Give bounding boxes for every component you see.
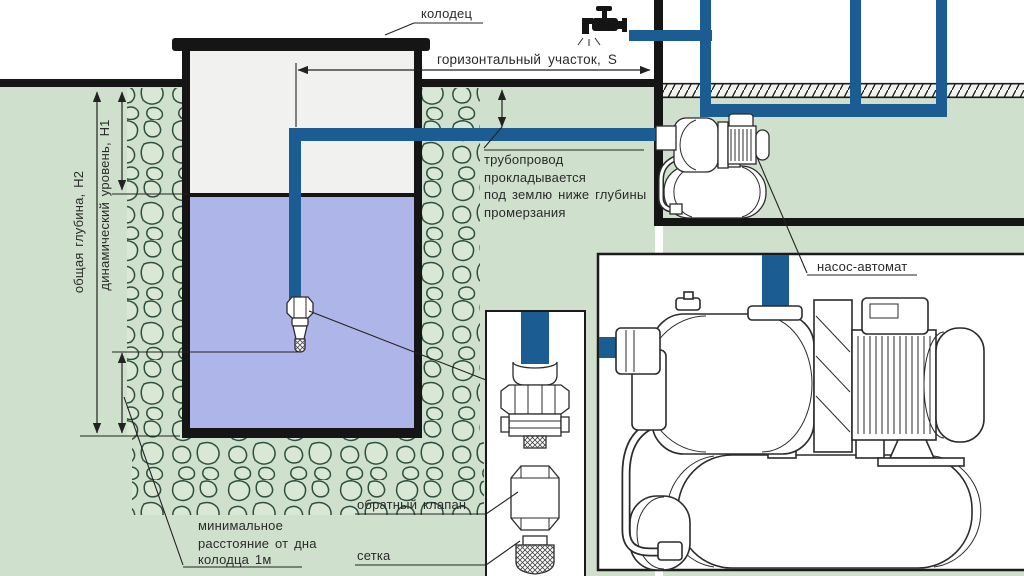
riser-pipe-1 — [700, 0, 711, 116]
suction-pipe-horizontal — [289, 128, 660, 141]
well-wall-right — [414, 48, 422, 438]
label-well: колодец — [421, 6, 472, 21]
label-check-valve: обратный клапан — [357, 497, 466, 512]
ground-surface-right — [422, 79, 663, 87]
ground-surface-left — [0, 79, 182, 87]
label-dynamic-level: динамический уровень, Н1 — [97, 119, 112, 290]
suction-pipe-vertical — [289, 128, 301, 302]
water-level-line — [190, 193, 414, 197]
detail-pipe — [521, 312, 549, 364]
label-pump: насос-автомат — [817, 259, 907, 274]
tap-pipe — [629, 30, 712, 41]
well-cover — [172, 38, 430, 51]
riser-pipe-3 — [936, 0, 947, 117]
label-pipeline-note-4: промерзания — [484, 205, 566, 220]
pump-station-illustration — [616, 292, 984, 570]
label-pipeline-note-3: под землю ниже глубины — [484, 187, 646, 202]
detail-box-foot-valve — [486, 311, 585, 576]
schematic-svg: колодец горизонтальный участок, S общая … — [0, 0, 1024, 576]
check-valve-illustration — [511, 466, 559, 530]
label-min-distance-2: расстояние от дна — [198, 536, 317, 551]
stone-backfill-left — [127, 88, 183, 437]
label-horizontal-section: горизонтальный участок, S — [437, 52, 617, 67]
well-pump-schematic: колодец горизонтальный участок, S общая … — [0, 0, 1024, 576]
label-strainer: сетка — [357, 548, 391, 563]
label-min-distance-3: колодца 1м — [198, 552, 272, 567]
house-floor-slab — [663, 83, 1024, 98]
floor-slab-hatch — [663, 83, 1024, 98]
riser-pipe-2 — [850, 0, 861, 116]
label-min-distance-1: минимальное — [198, 518, 283, 533]
label-pipeline-note-1: трубопровод — [484, 152, 564, 167]
stone-backfill-right — [422, 88, 480, 460]
label-pipeline-note-2: прокладывается — [484, 170, 586, 185]
basement-floor — [654, 218, 1024, 226]
well-bottom — [182, 428, 422, 438]
detail-box-pump — [598, 254, 1024, 570]
well-wall-left — [182, 48, 190, 438]
label-total-depth: общая глубина, Н2 — [71, 171, 86, 293]
